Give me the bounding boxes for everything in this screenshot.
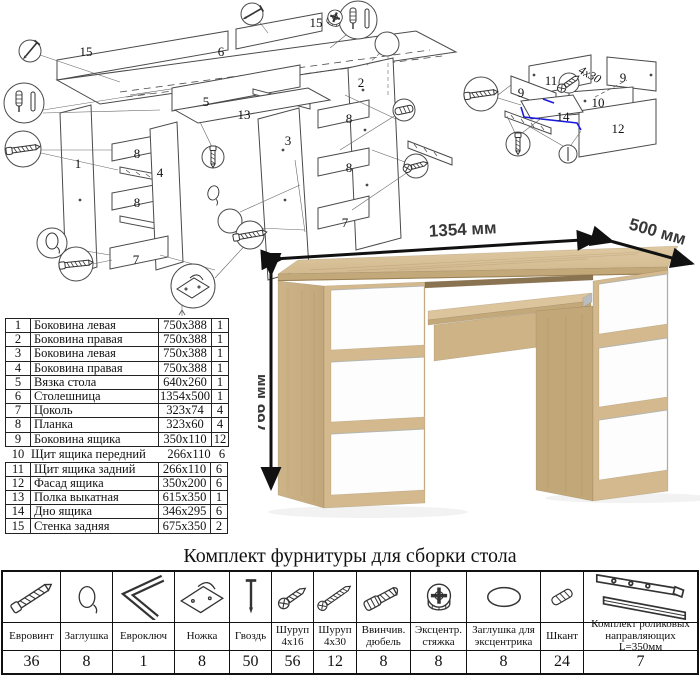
hardware-col-dyubel: Ввинчив. дюбель 8 — [357, 572, 411, 673]
svg-text:7: 7 — [133, 252, 140, 267]
cam-cap-icon — [467, 572, 540, 623]
cap-icon — [61, 572, 112, 623]
part-size: 1354x500 — [159, 389, 212, 403]
assembly-instruction-sheet: 15 6 15 5 13 1 8 4 8 7 3 2 8 8 7 — [0, 0, 700, 677]
part-name: Столешница — [31, 389, 159, 403]
part-qty: 6 — [215, 447, 229, 462]
part-size: 615x350 — [159, 491, 211, 505]
svg-text:1: 1 — [75, 156, 82, 171]
svg-text:8: 8 — [134, 195, 141, 210]
right-drawer-3 — [599, 410, 667, 480]
svg-text:8: 8 — [346, 160, 353, 175]
hardware-qty: 8 — [61, 651, 112, 673]
part-size: 266x110 — [159, 462, 211, 476]
part-number: 15 — [6, 519, 31, 533]
hardware-col-screw16: Шуруп 4x16 56 — [272, 572, 314, 673]
parts-table-bottom: 11 Щит ящика задний 266x110 6 12 Фасад я… — [5, 462, 228, 534]
part-number: 2 — [6, 333, 31, 347]
desk-body — [278, 246, 678, 508]
table-row: 15 Стенка задняя 675x350 2 — [6, 519, 228, 533]
left-drawer-3 — [331, 429, 424, 495]
table-row: 12 Фасад ящика 350x200 6 — [6, 476, 228, 490]
part-name: Фасад ящика — [31, 476, 159, 490]
hardware-qty: 24 — [541, 651, 583, 673]
table-row: 7 Цоколь 323x74 4 — [6, 404, 229, 418]
hardware-name: Ввинчив. дюбель — [357, 623, 410, 651]
part-qty: 4 — [212, 404, 229, 418]
height-dimension: 766 мм — [258, 374, 269, 432]
drawer-slides-icon — [584, 572, 697, 623]
part-number: 5 — [6, 375, 31, 389]
width-dimension: 1354 мм — [428, 218, 497, 241]
svg-text:2: 2 — [358, 75, 365, 90]
part-name: Вязка стола — [31, 375, 159, 389]
part-number: 13 — [6, 491, 31, 505]
svg-text:9: 9 — [518, 85, 525, 100]
svg-text:15: 15 — [80, 44, 93, 59]
part-number: 6 — [6, 389, 31, 403]
left-drawer-2 — [331, 357, 424, 422]
part-size: 750x388 — [159, 361, 212, 375]
part-size: 323x60 — [159, 418, 212, 432]
hardware-kit-title: Комплект фурнитуры для сборки стола — [1, 544, 699, 568]
part-qty: 1 — [212, 375, 229, 389]
hardware-name: Заглушка для эксцентрика — [467, 623, 540, 651]
hardware-col-eurovint: Евровинт 36 — [3, 572, 61, 673]
part-size: 266x110 — [163, 447, 215, 462]
table-row: 11 Щит ящика задний 266x110 6 — [6, 462, 228, 476]
part-number: 10 — [5, 447, 31, 462]
right-pedestal-inner-side — [536, 306, 593, 501]
part-qty: 1 — [212, 361, 229, 375]
part-qty: 6 — [211, 476, 228, 490]
svg-text:4: 4 — [157, 165, 164, 180]
svg-text:14: 14 — [557, 109, 571, 124]
part-qty: 1 — [212, 389, 229, 403]
hardware-qty: 1 — [113, 651, 174, 673]
part-size: 350x110 — [159, 432, 212, 446]
part-size: 750x388 — [159, 347, 212, 361]
part-size: 350x200 — [159, 476, 211, 490]
foot-icon — [175, 572, 229, 623]
part-name: Щит ящика передний — [31, 447, 163, 462]
table-row: 14 Дно ящика 346x295 6 — [6, 505, 228, 519]
hardware-col-hexkey: Евроключ 1 — [113, 572, 175, 673]
hardware-col-foot: Ножка 8 — [175, 572, 230, 673]
desk-render: 1354 мм 500 мм 766 мм — [258, 218, 700, 550]
part-size: 323x74 — [159, 404, 212, 418]
hardware-name: Гвоздь — [230, 623, 271, 651]
svg-text:5: 5 — [203, 94, 210, 109]
hardware-qty: 36 — [3, 651, 60, 673]
part-size: 750x388 — [159, 333, 212, 347]
hardware-qty: 12 — [314, 651, 356, 673]
hardware-name: Эксцентр. стяжка — [411, 623, 466, 651]
svg-text:11: 11 — [545, 73, 558, 88]
part-name: Боковина левая — [31, 319, 159, 333]
table-row: 4 Боковина правая 750x388 1 — [6, 361, 229, 375]
part-name: Боковина правая — [31, 361, 159, 375]
wood-dowel-icon — [541, 572, 583, 623]
table-row-10: 10 Щит ящика передний 266x110 6 — [5, 447, 229, 462]
part-number: 8 — [6, 418, 31, 432]
part-qty: 1 — [212, 347, 229, 361]
part-number: 11 — [6, 462, 31, 476]
left-drawer-1 — [331, 286, 424, 350]
hardware-name: Шуруп 4x30 — [314, 623, 356, 651]
hardware-col-cam: Эксцентр. стяжка 8 — [411, 572, 467, 673]
hardware-name: Ножка — [175, 623, 229, 651]
part-qty: 2 — [211, 519, 228, 533]
parts-list: 1 Боковина левая 750x388 1 2 Боковина пр… — [5, 318, 229, 534]
svg-text:3: 3 — [285, 133, 292, 148]
svg-text:8: 8 — [134, 146, 141, 161]
hex-key-icon — [113, 572, 174, 623]
svg-text:13: 13 — [238, 107, 251, 122]
hardware-name: Комплект роликовых направляющих L=350мм — [584, 623, 697, 651]
hardware-col-camcap: Заглушка для эксцентрика 8 — [467, 572, 541, 673]
hardware-qty: 8 — [411, 651, 466, 673]
part-number: 1 — [6, 319, 31, 333]
hardware-qty: 8 — [467, 651, 540, 673]
part-name: Стенка задняя — [31, 519, 159, 533]
part-name: Щит ящика задний — [31, 462, 159, 476]
svg-text:6: 6 — [218, 44, 225, 59]
part-name: Боковина правая — [31, 333, 159, 347]
part-number: 3 — [6, 347, 31, 361]
part-name: Полка выкатная — [31, 491, 159, 505]
table-row: 2 Боковина правая 750x388 1 — [6, 333, 229, 347]
part-number: 9 — [6, 432, 31, 446]
part-number: 4 — [6, 361, 31, 375]
part-name: Планка — [31, 418, 159, 432]
depth-dimension: 500 мм — [627, 218, 688, 249]
hardware-qty: 56 — [272, 651, 313, 673]
floor-shadow-left — [268, 506, 468, 518]
svg-text:10: 10 — [592, 95, 605, 110]
screw-in-dowel-icon — [357, 572, 410, 623]
table-row: 8 Планка 323x60 4 — [6, 418, 229, 432]
part-qty: 6 — [211, 462, 228, 476]
part-qty: 4 — [212, 418, 229, 432]
hardware-col-screw30: Шуруп 4x30 12 — [314, 572, 357, 673]
table-row: 9 Боковина ящика 350x110 12 — [6, 432, 229, 446]
hardware-name: Заглушка — [61, 623, 112, 651]
left-pedestal-side — [278, 281, 324, 508]
part-size: 346x295 — [159, 505, 211, 519]
hardware-qty: 8 — [175, 651, 229, 673]
part-size: 675x350 — [159, 519, 211, 533]
table-row: 13 Полка выкатная 615x350 1 — [6, 491, 228, 505]
part-number: 7 — [6, 404, 31, 418]
euro-screw-icon — [3, 572, 60, 623]
svg-text:12: 12 — [612, 121, 625, 136]
table-row: 5 Вязка стола 640x260 1 — [6, 375, 229, 389]
table-row: 1 Боковина левая 750x388 1 — [6, 319, 229, 333]
cam-lock-icon — [411, 572, 466, 623]
hardware-qty: 7 — [584, 651, 697, 673]
part-size: 640x260 — [159, 375, 212, 389]
part-name: Цоколь — [31, 404, 159, 418]
exploded-drawer-diagram: 11 9 9 10 12 14 4x30 — [455, 35, 700, 220]
table-row: 6 Столешница 1354x500 1 — [6, 389, 229, 403]
svg-text:15: 15 — [310, 15, 323, 30]
part-size: 750x388 — [159, 319, 212, 333]
right-drawer-2 — [599, 338, 667, 407]
hardware-name: Шкант — [541, 623, 583, 651]
screw-long-icon — [314, 572, 356, 623]
part-qty: 1 — [212, 333, 229, 347]
hardware-qty: 8 — [357, 651, 410, 673]
part-number: 12 — [6, 476, 31, 490]
svg-text:9: 9 — [620, 70, 627, 85]
part-name: Боковина левая — [31, 347, 159, 361]
hardware-col-shkant: Шкант 24 — [541, 572, 584, 673]
table-row: 3 Боковина левая 750x388 1 — [6, 347, 229, 361]
hardware-name: Евроключ — [113, 623, 174, 651]
hardware-col-nail: Гвоздь 50 — [230, 572, 272, 673]
part-qty: 12 — [212, 432, 229, 446]
hardware-name: Евровинт — [3, 623, 60, 651]
part-number: 14 — [6, 505, 31, 519]
hardware-kit: Комплект фурнитуры для сборки стола Евро… — [1, 544, 699, 675]
hardware-name: Шуруп 4x16 — [272, 623, 313, 651]
parts-table-top: 1 Боковина левая 750x388 1 2 Боковина пр… — [5, 318, 229, 447]
nail-icon — [230, 572, 271, 623]
hardware-col-slides: Комплект роликовых направляющих L=350мм … — [584, 572, 697, 673]
part-qty: 1 — [212, 319, 229, 333]
screw-short-icon — [272, 572, 313, 623]
part-qty: 6 — [211, 505, 228, 519]
svg-text:8: 8 — [346, 111, 353, 126]
hardware-col-cap: Заглушка 8 — [61, 572, 113, 673]
part-qty: 1 — [211, 491, 228, 505]
part-name: Боковина ящика — [31, 432, 159, 446]
hardware-table: Евровинт 36 Заглушка 8 Евроключ 1 — [1, 570, 699, 675]
part-name: Дно ящика — [31, 505, 159, 519]
hardware-qty: 50 — [230, 651, 271, 673]
